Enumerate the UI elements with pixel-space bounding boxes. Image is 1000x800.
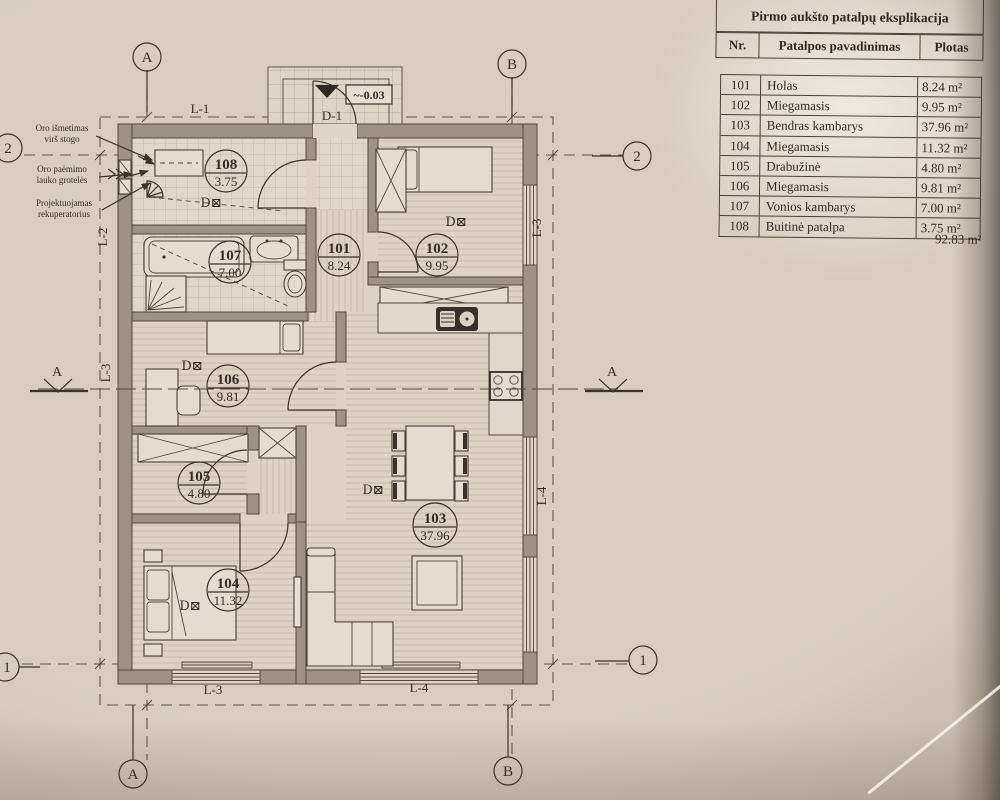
col-header-nr: Nr.: [716, 33, 759, 57]
chair: [177, 386, 200, 415]
table-total-area: 92.83 m²: [811, 230, 981, 248]
window-right-middle: [523, 437, 537, 535]
svg-text:108: 108: [215, 157, 238, 173]
svg-text:102: 102: [426, 241, 449, 257]
col-header-name: Patalpos pavadinimas: [759, 33, 920, 59]
axis-bubble-b-top: B: [498, 50, 526, 78]
svg-text:9.81: 9.81: [217, 389, 240, 404]
svg-text:B: B: [503, 764, 513, 780]
svg-text:8.24: 8.24: [328, 258, 351, 273]
section-mark-left: A: [30, 365, 88, 392]
table-row: 107 Vonios kambarys 7.00 m²: [720, 196, 980, 219]
svg-text:104: 104: [217, 576, 240, 592]
svg-text:106: 106: [217, 372, 240, 388]
grid-l3-left: L-3: [98, 364, 113, 383]
window-right-bottom: [523, 557, 537, 652]
coffee-table: [412, 556, 462, 610]
room-explication-table: Pirmo aukšto patalpų eksplikacija Nr. Pa…: [716, 0, 986, 3]
axis-bubble-b-bottom: B: [494, 757, 522, 785]
grid-l4-bottom: L-4: [410, 680, 429, 695]
grid-l1: L-1: [191, 101, 210, 116]
detector-106: D⊠: [181, 359, 202, 374]
table-row: 106 Miegamasis 9.81 m²: [720, 176, 980, 199]
hall-entry-tiles: [316, 138, 368, 210]
svg-text:11.32: 11.32: [214, 593, 243, 608]
axis-bubble-1-right: 1: [629, 646, 657, 674]
col-header-area: Plotas: [920, 35, 982, 60]
svg-text:2: 2: [633, 149, 641, 165]
svg-text:3.75: 3.75: [215, 174, 238, 189]
svg-text:lauko grotelės: lauko grotelės: [37, 175, 88, 185]
svg-text:A: A: [142, 50, 153, 66]
svg-text:Oro išmetimas: Oro išmetimas: [36, 123, 89, 133]
svg-text:7.00: 7.00: [219, 265, 242, 280]
svg-text:1: 1: [639, 653, 647, 669]
svg-text:Projektuojamas: Projektuojamas: [36, 198, 92, 208]
sofa-armrest: [307, 548, 335, 556]
entrance-opening: [313, 124, 357, 138]
svg-text:A: A: [52, 365, 63, 380]
bed-single: [398, 147, 492, 192]
door-d1-tag: D-1: [322, 108, 342, 123]
toilet: [284, 260, 306, 297]
level-mark-value: ~-0.03: [353, 88, 384, 102]
axis-bubble-2-left: 2: [0, 134, 22, 162]
svg-text:2: 2: [4, 141, 12, 157]
stove: [490, 372, 522, 400]
tv-panel: [294, 577, 301, 627]
detector-102: D⊠: [445, 215, 466, 230]
detector-108: D⊠: [200, 196, 221, 211]
grid-l3-right: L-3: [529, 219, 544, 238]
svg-text:A: A: [128, 767, 139, 783]
bed-single: [207, 321, 303, 354]
kitchen-sink: [436, 307, 478, 331]
desk: [146, 369, 178, 426]
table-title: Pirmo aukšto patalpų eksplikacija: [716, 0, 984, 35]
svg-text:107: 107: [219, 248, 242, 264]
svg-text:rekuperatorius: rekuperatorius: [38, 209, 90, 219]
svg-text:virš stogo: virš stogo: [44, 134, 80, 144]
detector-103: D⊠: [362, 483, 383, 498]
section-mark-right: A: [585, 365, 643, 392]
detector-104: D⊠: [179, 599, 200, 614]
svg-text:1: 1: [3, 660, 11, 676]
scanned-floor-plan-photo: ~-0.03: [0, 0, 1000, 800]
axis-bubble-a-bottom: A: [119, 760, 147, 788]
svg-text:B: B: [507, 57, 517, 73]
table-row: 105 Drabužinė 4.80 m²: [720, 156, 980, 179]
svg-text:105: 105: [188, 469, 211, 485]
grid-l3-bottom: L-3: [204, 682, 223, 697]
svg-text:103: 103: [424, 511, 447, 527]
svg-text:9.95: 9.95: [426, 258, 449, 273]
table-row: 101 Holas 8.24 m²: [721, 75, 981, 98]
nightstand: [144, 644, 162, 656]
axis-bubble-1-left: 1: [0, 653, 19, 681]
dining-table: [406, 426, 454, 500]
table-header-row: Nr. Patalpos pavadinimas Plotas: [715, 32, 983, 61]
vent-shaft: [376, 149, 406, 212]
grid-l2: L-2: [95, 228, 110, 247]
nightstand: [144, 550, 162, 562]
table-body: 101 Holas 8.24 m² 102 Miegamasis 9.95 m²…: [719, 74, 983, 239]
svg-text:4.80: 4.80: [188, 486, 211, 501]
svg-text:A: A: [607, 365, 618, 380]
svg-text:37.96: 37.96: [420, 528, 450, 543]
axis-bubble-2-right: 2: [623, 142, 651, 170]
axis-bubble-a-top: A: [133, 43, 161, 71]
washbasin: [250, 236, 298, 262]
svg-text:Oro paėmimo: Oro paėmimo: [37, 164, 87, 174]
svg-text:101: 101: [328, 241, 351, 257]
grid-l4-right: L-4: [534, 486, 549, 505]
table-row: 104 Miegamasis 11.32 m²: [720, 136, 980, 159]
table-row: 103 Bendras kambarys 37.96 m²: [721, 115, 981, 138]
table-row: 102 Miegamasis 9.95 m²: [721, 95, 981, 118]
